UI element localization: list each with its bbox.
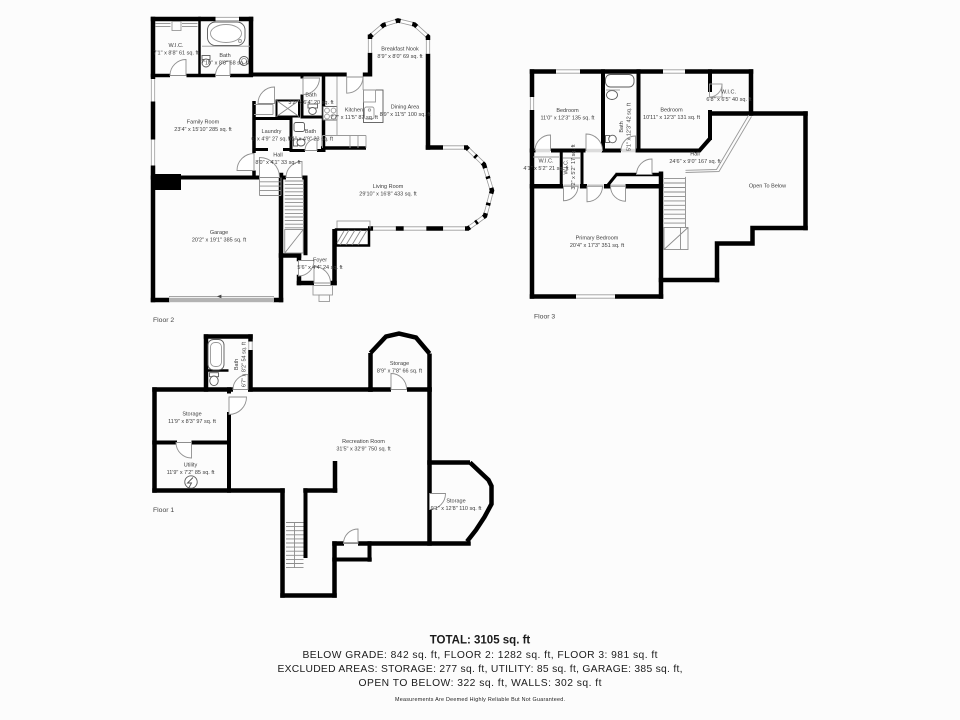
svg-text:8'0" x 4'1" 33 sq. ft: 8'0" x 4'1" 33 sq. ft xyxy=(255,160,301,166)
svg-text:W.I.C.: W.I.C. xyxy=(539,159,554,165)
svg-text:Floor 3: Floor 3 xyxy=(534,314,555,321)
svg-text:Hall: Hall xyxy=(690,152,699,158)
svg-text:Breakfast Nook: Breakfast Nook xyxy=(381,47,419,53)
svg-text:11'9" x 7'2" 85 sq. ft: 11'9" x 7'2" 85 sq. ft xyxy=(167,470,215,476)
svg-text:7'10" x 8'8" 68 sq. ft: 7'10" x 8'8" 68 sq. ft xyxy=(201,61,250,67)
svg-text:Measurements Are Deemed Highly: Measurements Are Deemed Highly Reliable … xyxy=(395,697,565,703)
svg-text:Living Room: Living Room xyxy=(373,184,404,190)
svg-text:Garage: Garage xyxy=(210,230,228,236)
svg-text:8'9" x 7'8" 66 sq. ft: 8'9" x 7'8" 66 sq. ft xyxy=(377,369,423,375)
svg-text:OPEN TO BELOW: 322 sq. ft, WAL: OPEN TO BELOW: 322 sq. ft, WALLS: 302 sq… xyxy=(359,678,602,689)
svg-text:8'9" x 8'0" 69 sq. ft: 8'9" x 8'0" 69 sq. ft xyxy=(377,54,423,60)
svg-text:Dining Area: Dining Area xyxy=(391,105,420,111)
svg-text:Bath: Bath xyxy=(619,121,625,132)
svg-text:Storage: Storage xyxy=(182,412,201,418)
svg-text:6'7" x 8'2" 54 sq. ft: 6'7" x 8'2" 54 sq. ft xyxy=(242,341,248,387)
svg-text:Primary Bedroom: Primary Bedroom xyxy=(576,236,619,242)
svg-text:5'1" x 4'9" 23 sq. ft: 5'1" x 4'9" 23 sq. ft xyxy=(288,137,334,143)
svg-text:Hall: Hall xyxy=(273,153,282,159)
svg-text:11'9" x 8'3" 97 sq. ft: 11'9" x 8'3" 97 sq. ft xyxy=(168,419,216,425)
svg-text:9'1" x 12'8" 110 sq. ft: 9'1" x 12'8" 110 sq. ft xyxy=(431,506,482,512)
svg-text:Utility: Utility xyxy=(184,463,198,469)
svg-text:W.I.C.: W.I.C. xyxy=(721,90,736,96)
svg-text:20'2" x 19'1" 385 sq. ft: 20'2" x 19'1" 385 sq. ft xyxy=(192,238,247,244)
svg-text:Floor 2: Floor 2 xyxy=(153,317,174,324)
svg-text:10'11" x 12'3" 131 sq. ft: 10'11" x 12'3" 131 sq. ft xyxy=(643,115,700,121)
svg-text:Recreation Room: Recreation Room xyxy=(342,439,385,445)
svg-text:23'4" x 15'10" 285 sq. ft: 23'4" x 15'10" 285 sq. ft xyxy=(174,127,232,133)
svg-text:Open To Below: Open To Below xyxy=(749,184,786,190)
svg-text:Bath: Bath xyxy=(305,129,316,135)
svg-text:Bath: Bath xyxy=(305,93,316,99)
svg-text:4'1" x 5'2" 21 sq. ft: 4'1" x 5'2" 21 sq. ft xyxy=(523,166,569,172)
svg-text:11'0" x 12'3" 135 sq. ft: 11'0" x 12'3" 135 sq. ft xyxy=(541,116,595,122)
svg-text:29'10" x 16'8" 433 sq. ft: 29'10" x 16'8" 433 sq. ft xyxy=(359,192,417,198)
svg-text:Bedroom: Bedroom xyxy=(660,108,683,114)
svg-text:Family Room: Family Room xyxy=(187,120,220,126)
svg-text:Bedroom: Bedroom xyxy=(556,108,579,114)
svg-text:W.I.C.: W.I.C. xyxy=(169,43,184,49)
svg-text:8'9" x 11'5" 100 sq. ft: 8'9" x 11'5" 100 sq. ft xyxy=(380,112,431,118)
svg-text:W.I.C.: W.I.C. xyxy=(564,159,570,174)
svg-text:Laundry: Laundry xyxy=(262,129,282,135)
svg-text:5'1" x 12'3" 42 sq. ft: 5'1" x 12'3" 42 sq. ft xyxy=(627,102,633,151)
svg-text:20'4" x 17'3" 351 sq. ft: 20'4" x 17'3" 351 sq. ft xyxy=(570,243,625,249)
svg-text:24'6" x 9'0" 167 sq. ft: 24'6" x 9'0" 167 sq. ft xyxy=(669,159,721,165)
svg-text:3'2" x 6'4" 20 sq. ft: 3'2" x 6'4" 20 sq. ft xyxy=(288,100,334,106)
svg-text:Storage: Storage xyxy=(446,499,465,505)
svg-text:Storage: Storage xyxy=(390,361,409,367)
svg-text:7'7" x 11'5" 87 sq. ft: 7'7" x 11'5" 87 sq. ft xyxy=(330,115,378,121)
svg-text:Bath: Bath xyxy=(219,53,230,59)
svg-text:EXCLUDED AREAS: STORAGE: 277 s: EXCLUDED AREAS: STORAGE: 277 sq. ft, UTI… xyxy=(278,664,683,675)
svg-text:Bath: Bath xyxy=(234,359,240,370)
svg-text:5'6" x 4'4" 24 sq. ft: 5'6" x 4'4" 24 sq. ft xyxy=(297,265,343,271)
svg-text:Floor 1: Floor 1 xyxy=(153,507,174,514)
svg-text:Foyer: Foyer xyxy=(313,258,327,264)
svg-text:3'2" x 5'2" 17 sq. ft: 3'2" x 5'2" 17 sq. ft xyxy=(571,144,577,190)
svg-text:6' x 4'9" 27 sq. ft: 6' x 4'9" 27 sq. ft xyxy=(251,137,292,143)
svg-text:6'8" x 6'5" 40 sq. ft: 6'8" x 6'5" 40 sq. ft xyxy=(706,97,752,103)
svg-text:31'5" x 32'9" 750 sq. ft: 31'5" x 32'9" 750 sq. ft xyxy=(336,447,391,453)
svg-text:Kitchen: Kitchen xyxy=(345,108,363,114)
svg-text:TOTAL: 3105 sq. ft: TOTAL: 3105 sq. ft xyxy=(430,635,531,647)
svg-text:7'1" x 8'8" 61 sq. ft: 7'1" x 8'8" 61 sq. ft xyxy=(153,51,199,57)
svg-text:BELOW GRADE: 842 sq. ft, FLOOR: BELOW GRADE: 842 sq. ft, FLOOR 2: 1282 s… xyxy=(303,650,658,661)
